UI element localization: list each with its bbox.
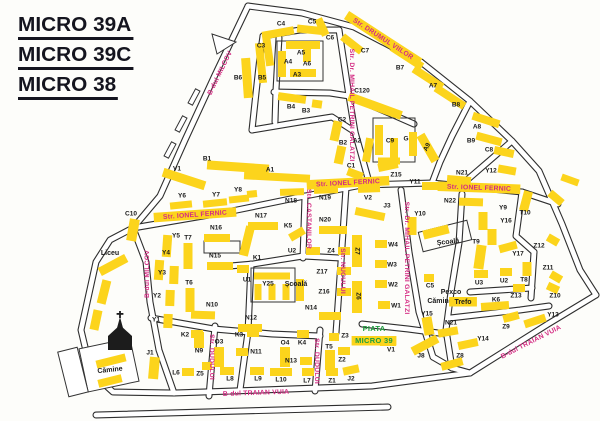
block-label-J8: J8: [417, 353, 425, 360]
block-label-N15: N15: [209, 253, 221, 260]
map-page: C4C5C3C6C7B7A7B8A5A4A6A3B6B5C120B4B3A8B9…: [0, 0, 600, 421]
traffic-island: [175, 116, 187, 132]
building-block: [488, 229, 497, 245]
block-label-Z17: Z17: [316, 269, 328, 276]
block-label-N12: N12: [245, 315, 257, 322]
street-label-B-dul-TRAIAN-VUIA: B-dul TRAIAN VUIA: [223, 389, 290, 398]
building-block: [286, 41, 320, 49]
building-block: [191, 311, 215, 320]
block-label-V2: V2: [364, 195, 372, 202]
block-label-T9: T9: [472, 239, 480, 246]
street-label-B-dul-MILCOV: B-dul MILCOV: [144, 250, 151, 298]
place-label--coal-: Școală: [285, 281, 308, 288]
block-label-Y7: Y7: [212, 192, 220, 199]
map-title-line: MICRO 39A: [18, 14, 133, 40]
building-block: [186, 288, 195, 312]
street-label-Str-NUCULUI: Str. NUCULUI: [339, 248, 346, 294]
block-label-Y25: Y25: [262, 281, 274, 288]
place-label-Liceu: Liceu: [101, 250, 119, 257]
block-label-Z13: Z13: [510, 293, 522, 300]
block-label-A4: A4: [284, 59, 293, 66]
block-label-A8: A8: [473, 124, 482, 131]
building-block: [203, 198, 228, 207]
block-label-C2: C2: [338, 117, 347, 124]
building-block: [560, 174, 579, 187]
block-label-L9: L9: [254, 376, 262, 383]
building-block: [362, 137, 374, 162]
building-block: [342, 364, 359, 375]
block-label-Z9: Z9: [502, 324, 510, 331]
block-label-C10: C10: [125, 211, 137, 218]
block-label-B2: B2: [339, 140, 348, 147]
building-block: [500, 268, 512, 276]
block-label-J1: J1: [146, 350, 154, 357]
building-block: [182, 368, 194, 376]
block-label-N21: N21: [445, 320, 457, 327]
building-block: [302, 368, 314, 376]
building-block: [90, 309, 103, 330]
block-label-C9: C9: [386, 138, 395, 145]
building-block: [229, 194, 250, 203]
church-icon: [117, 317, 123, 328]
block-label-N13: N13: [285, 358, 297, 365]
block-label-Z1: Z1: [328, 378, 336, 385]
block-label-L8: L8: [226, 376, 234, 383]
block-label-K1: K1: [253, 255, 262, 262]
block-label-Y6: Y6: [178, 193, 186, 200]
place-label-PIATA: PIATA: [363, 324, 386, 333]
building-block: [338, 347, 350, 355]
building-block: [546, 234, 560, 247]
block-label-N19: N19: [319, 195, 331, 202]
block-label-Z2: Z2: [338, 357, 346, 364]
block-label-Y2: Y2: [153, 293, 161, 300]
block-label-N18: N18: [285, 198, 297, 205]
building-block: [169, 266, 179, 284]
building-block: [334, 145, 347, 164]
block-label-Y3: Y3: [158, 270, 166, 277]
building-block: [297, 330, 309, 338]
building-block: [457, 338, 478, 350]
building-block: [250, 367, 264, 375]
block-label-L10: L10: [275, 377, 287, 384]
block-label-W1: W1: [391, 303, 401, 310]
building-block: [247, 190, 258, 198]
block-label-K5: K5: [284, 223, 293, 230]
block-label-Y8: Y8: [234, 187, 242, 194]
building-block: [325, 350, 335, 370]
traffic-island: [188, 89, 200, 105]
building-block: [236, 348, 248, 356]
block-label-K6: K6: [492, 297, 501, 304]
church-icon: [108, 325, 132, 350]
block-label-T5: T5: [325, 344, 333, 351]
building-block: [184, 243, 193, 269]
block-label-A1: A1: [266, 167, 275, 174]
building-block: [409, 132, 417, 156]
building-outline: [204, 241, 240, 253]
building-block: [237, 265, 249, 273]
block-label-B5: B5: [258, 75, 267, 82]
building-block: [378, 301, 390, 309]
church-icon: [108, 311, 132, 350]
block-label-Y11: Y11: [409, 179, 421, 186]
building-block: [247, 329, 259, 337]
block-label-C1: C1: [347, 163, 356, 170]
block-label-J3: J3: [383, 203, 391, 210]
block-label-Y1: Y1: [152, 317, 160, 324]
street-label-Str-DUDULUI: Str. DUDULUI: [208, 334, 215, 380]
block-label-C3: C3: [257, 43, 266, 50]
building-block: [474, 270, 488, 278]
building-block: [326, 368, 338, 376]
block-label-K4: K4: [298, 340, 307, 347]
block-label-Y4: Y4: [162, 250, 170, 257]
building-block: [497, 164, 516, 175]
block-label-Y10: Y10: [414, 211, 426, 218]
building-block: [254, 273, 290, 280]
block-label-N9: N9: [195, 348, 204, 355]
block-label-Z10: Z10: [549, 293, 561, 300]
block-label-Y15: Y15: [421, 311, 433, 318]
block-label-Z7: Z7: [353, 247, 360, 255]
block-label-G: G: [403, 136, 408, 143]
building-block: [513, 284, 525, 292]
building-block: [280, 368, 292, 376]
place-label-MICRO-39: MICRO 39: [355, 336, 393, 345]
block-label-V1: V1: [387, 347, 395, 354]
building-block: [375, 240, 387, 248]
block-label-B6: B6: [234, 75, 243, 82]
block-label-Y12: Y12: [485, 168, 497, 175]
block-label-Z5: Z5: [196, 371, 204, 378]
block-label-N16: N16: [210, 225, 222, 232]
building-block: [459, 198, 483, 207]
block-label-C120: C120: [354, 88, 370, 95]
building-block: [165, 290, 175, 306]
block-label-Z12: Z12: [533, 243, 545, 250]
block-label-V1: V1: [173, 166, 181, 173]
block-label-L6: L6: [172, 370, 180, 377]
block-label-A6: A6: [303, 61, 312, 68]
block-label-Z15: Z15: [390, 172, 402, 179]
block-label-K3: K3: [235, 332, 244, 339]
building-block: [319, 312, 341, 320]
building-block: [319, 226, 347, 234]
building-block: [280, 188, 304, 196]
building-block: [437, 326, 458, 337]
block-label-Z11: Z11: [543, 265, 554, 272]
block-label-A7: A7: [429, 83, 438, 90]
block-label-J2: J2: [347, 376, 355, 383]
map-title: MICRO 39A MICRO 39C MICRO 38: [18, 14, 129, 104]
block-label-Z6: Z6: [354, 292, 361, 300]
building-block: [163, 314, 172, 328]
block-label-B1: B1: [203, 156, 212, 163]
block-label-U2: U2: [288, 248, 297, 255]
block-label-K2: K2: [181, 332, 190, 339]
block-label-N11: N11: [250, 349, 262, 356]
building-block: [220, 367, 234, 375]
road: [303, 256, 340, 258]
road: [303, 196, 305, 258]
building-block: [479, 212, 488, 230]
block-label-Y5: Y5: [172, 233, 180, 240]
building-block: [354, 207, 385, 221]
building-block: [422, 224, 449, 239]
map-title-line: MICRO 38: [18, 74, 118, 100]
block-label-T8: T8: [520, 277, 528, 284]
block-label-B9: B9: [467, 138, 476, 145]
block-label-Y14: Y14: [477, 336, 489, 343]
block-label-N22: N22: [444, 198, 456, 205]
building-block: [148, 357, 160, 380]
block-label-N20: N20: [319, 217, 331, 224]
block-label-C5: C5: [426, 283, 435, 290]
building-block: [207, 160, 269, 173]
building-block: [204, 234, 230, 242]
building-block: [255, 284, 262, 300]
building-block: [375, 260, 387, 268]
building-block: [170, 200, 193, 209]
block-label-Z3: Z3: [341, 333, 349, 340]
block-label-Y16: Y16: [500, 218, 512, 225]
building-block: [300, 357, 312, 365]
place-label-Trefo: Trefo: [454, 299, 471, 306]
block-label-W2: W2: [388, 282, 398, 289]
building-block: [424, 274, 434, 282]
building-block: [311, 99, 322, 108]
building-block: [244, 171, 310, 182]
block-label-Y9: Y9: [499, 205, 507, 212]
block-label-N14: N14: [305, 305, 317, 312]
building-block: [549, 271, 563, 284]
block-label-T7: T7: [184, 235, 192, 242]
building-block: [523, 262, 532, 276]
map-title-line: MICRO 39C: [18, 44, 133, 70]
street-label-Str-Dr-MIHAIL-PETRINI-GALATZI: Str. Dr. MIHAIL PETRINI GALATZI: [403, 202, 410, 315]
block-label-W4: W4: [388, 242, 398, 249]
block-label-U2: U2: [500, 278, 509, 285]
block-label-B3: B3: [302, 108, 311, 115]
block-label-B8: B8: [452, 102, 461, 109]
street-label-Str-CASTANILOR: Str. CASTANILOR: [305, 189, 312, 249]
block-label-C8: C8: [485, 147, 494, 154]
block-label-U3: U3: [475, 280, 484, 287]
place-label-Pexco: Pexco: [441, 289, 462, 296]
place-label-C-mine: Cămine: [427, 298, 452, 305]
block-label-Z4: Z4: [327, 248, 335, 255]
building-block: [473, 244, 486, 269]
street-label-Str-Dr-MIHAIL-PETRINI-GALATZI: Str. Dr. MIHAIL PETRINI GALATZI: [348, 49, 355, 162]
block-label-C4: C4: [277, 21, 286, 28]
road: [133, 6, 248, 228]
block-label-L7: L7: [303, 378, 311, 385]
building-block: [375, 125, 383, 155]
church-icon: [117, 313, 124, 315]
block-label-C5: C5: [308, 19, 317, 26]
block-label-N17: N17: [255, 213, 267, 220]
block-label-U1: U1: [243, 277, 252, 284]
building-block: [97, 279, 112, 304]
block-label-A5: A5: [297, 50, 306, 57]
block-label-N10: N10: [206, 302, 218, 309]
block-label-C7: C7: [361, 48, 370, 55]
block-label-T10: T10: [519, 210, 531, 217]
building-block: [241, 58, 253, 99]
block-label-Y13: Y13: [547, 312, 559, 319]
building-block: [375, 280, 387, 288]
building-block: [329, 333, 339, 341]
block-label-Y17: Y17: [512, 251, 524, 258]
building-block: [239, 225, 255, 256]
building-block: [207, 262, 233, 270]
building-block: [194, 332, 204, 348]
block-label-Z16: Z16: [318, 289, 330, 296]
block-label-C6: C6: [326, 35, 335, 42]
block-label-Z8: Z8: [456, 353, 464, 360]
block-label-A3: A3: [293, 72, 302, 79]
building-block: [475, 132, 502, 146]
block-label-B7: B7: [396, 65, 405, 72]
block-label-O4: O4: [281, 340, 290, 347]
street-label-Str-DUDULUI: Str. DUDULUI: [313, 338, 320, 384]
block-label-B4: B4: [287, 104, 296, 111]
block-label-W3: W3: [387, 262, 397, 269]
block-label-T6: T6: [185, 280, 193, 287]
block-label-N21: N21: [456, 170, 468, 177]
